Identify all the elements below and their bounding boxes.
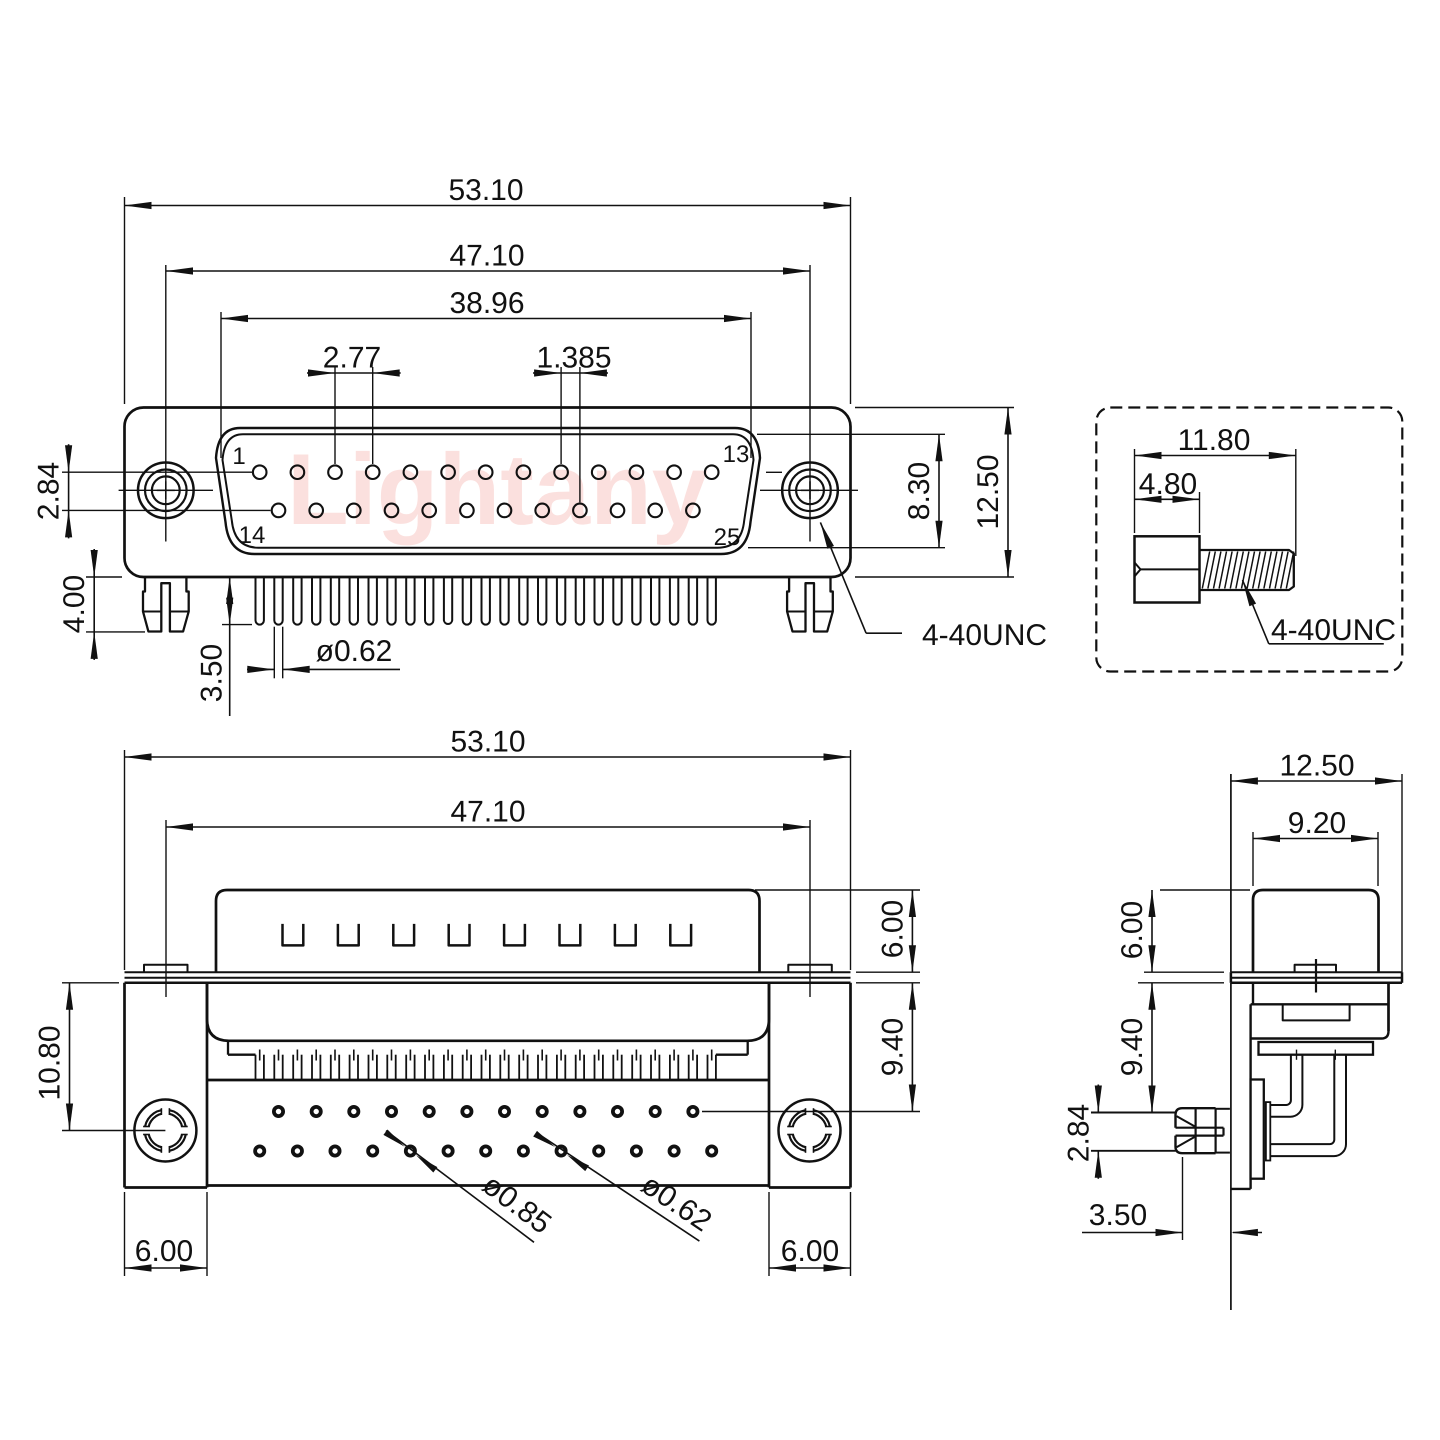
svg-text:6.00: 6.00 <box>781 1235 839 1268</box>
svg-text:2.84: 2.84 <box>33 462 66 520</box>
svg-text:4-40UNC: 4-40UNC <box>1271 614 1396 647</box>
svg-text:8.30: 8.30 <box>903 462 936 520</box>
svg-text:10.80: 10.80 <box>34 1025 67 1100</box>
svg-text:47.10: 47.10 <box>449 240 524 273</box>
svg-text:9.40: 9.40 <box>1116 1018 1149 1076</box>
svg-text:2.84: 2.84 <box>1062 1104 1095 1162</box>
svg-text:53.10: 53.10 <box>448 174 523 207</box>
svg-text:3.50: 3.50 <box>1089 1199 1147 1232</box>
svg-text:4-40UNC: 4-40UNC <box>922 619 1047 652</box>
svg-text:9.40: 9.40 <box>876 1018 909 1076</box>
svg-text:ø0.62: ø0.62 <box>316 635 393 668</box>
svg-text:12.50: 12.50 <box>972 454 1005 529</box>
svg-text:Lightany: Lightany <box>287 434 708 546</box>
svg-text:11.80: 11.80 <box>1178 424 1251 457</box>
svg-text:14: 14 <box>239 522 266 549</box>
svg-text:4.00: 4.00 <box>58 575 91 633</box>
svg-text:9.20: 9.20 <box>1288 807 1346 840</box>
svg-text:6.00: 6.00 <box>876 900 909 958</box>
svg-text:3.50: 3.50 <box>196 644 229 702</box>
svg-text:12.50: 12.50 <box>1279 750 1354 783</box>
svg-text:53.10: 53.10 <box>450 726 525 759</box>
svg-text:1.385: 1.385 <box>536 342 611 375</box>
svg-text:47.10: 47.10 <box>450 796 525 829</box>
svg-text:1: 1 <box>232 443 245 470</box>
svg-text:25: 25 <box>714 524 741 551</box>
svg-text:38.96: 38.96 <box>449 287 524 320</box>
svg-text:13: 13 <box>723 441 750 468</box>
svg-text:6.00: 6.00 <box>1116 901 1149 959</box>
svg-text:4.80: 4.80 <box>1139 468 1197 501</box>
svg-text:6.00: 6.00 <box>135 1235 193 1268</box>
